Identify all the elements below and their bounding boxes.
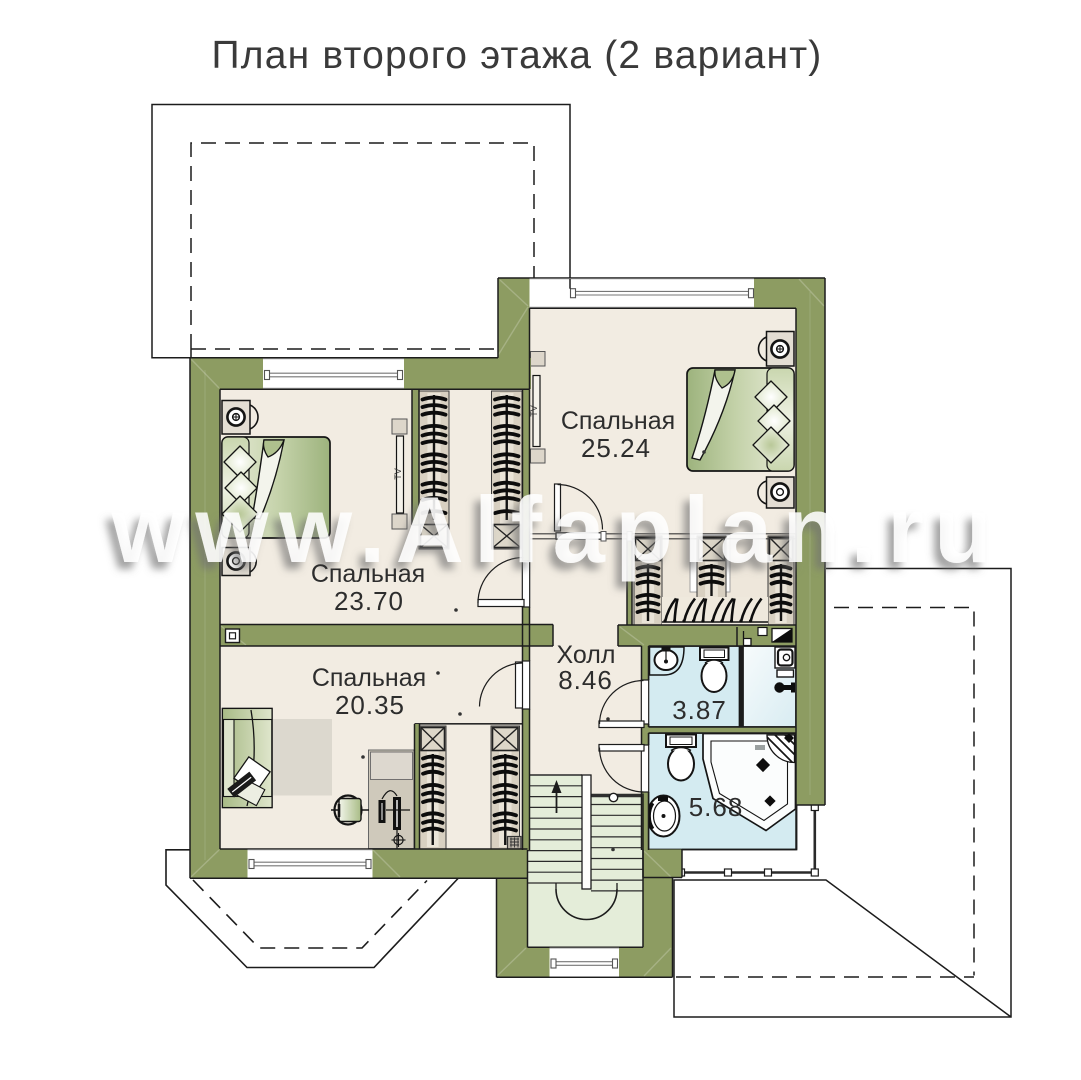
svg-text:25.24: 25.24 <box>581 433 651 463</box>
svg-text:3.87: 3.87 <box>672 695 727 725</box>
svg-text:Спальная: Спальная <box>312 664 426 692</box>
svg-text:План второго этажа (2 вариант): План второго этажа (2 вариант) <box>212 34 823 77</box>
svg-text:Спальная: Спальная <box>311 560 425 588</box>
svg-text:5.68: 5.68 <box>689 792 744 822</box>
svg-text:TV: TV <box>529 405 539 417</box>
svg-text:Спальная: Спальная <box>561 407 675 435</box>
svg-text:23.70: 23.70 <box>334 586 404 616</box>
svg-text:8.46: 8.46 <box>558 665 613 695</box>
svg-text:www.Alfaplan.ru: www.Alfaplan.ru <box>111 477 1002 582</box>
svg-text:20.35: 20.35 <box>335 690 405 720</box>
